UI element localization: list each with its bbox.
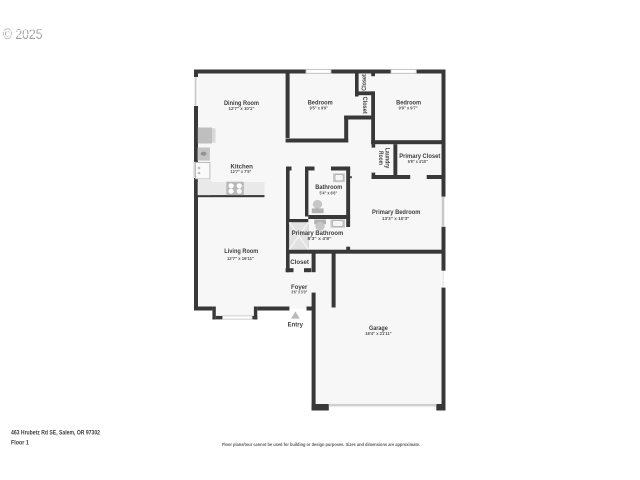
svg-text:Closet: Closet: [361, 97, 368, 115]
svg-text:Bedroom: Bedroom: [396, 99, 421, 106]
svg-text:Primary Bathroom: Primary Bathroom: [292, 230, 344, 237]
svg-text:9'9" x 9'7": 9'9" x 9'7": [399, 106, 418, 112]
svg-text:9'5" x 9'9": 9'5" x 9'9": [310, 106, 328, 112]
svg-text:Primary Bedroom: Primary Bedroom: [372, 209, 420, 216]
svg-text:Living Room: Living Room: [224, 248, 258, 255]
svg-text:12'7" x 10'1": 12'7" x 10'1": [229, 106, 255, 112]
svg-text:Closet: Closet: [290, 259, 309, 266]
svg-text:13'3" x 10'3": 13'3" x 10'3": [382, 216, 410, 222]
svg-text:Primary Closet: Primary Closet: [399, 153, 441, 160]
svg-text:Floor 1: Floor 1: [11, 439, 29, 446]
svg-text:18'4" x 21'11": 18'4" x 21'11": [365, 331, 392, 337]
svg-text:12'7" x 16'11": 12'7" x 16'11": [227, 256, 254, 262]
svg-text:Closet: Closet: [361, 74, 368, 91]
svg-text:Bathroom: Bathroom: [315, 184, 342, 191]
svg-text:Room: Room: [377, 151, 384, 165]
svg-text:5'4" x 6'6": 5'4" x 6'6": [320, 190, 338, 196]
svg-text:6'8" x 4'10": 6'8" x 4'10": [408, 159, 428, 165]
svg-text:3'6" x 5'0": 3'6" x 5'0": [291, 290, 307, 296]
svg-text:463 Hrubetz Rd SE, Salem, OR 9: 463 Hrubetz Rd SE, Salem, OR 97302: [11, 430, 100, 437]
svg-text:Bedroom: Bedroom: [308, 99, 333, 106]
svg-text:Entry: Entry: [288, 322, 304, 329]
svg-text:12'7" x 7'5": 12'7" x 7'5": [230, 169, 251, 175]
svg-text:Floor plans/tour cannot be use: Floor plans/tour cannot be used for buil…: [222, 442, 420, 447]
svg-text:8'3" x 4'8": 8'3" x 4'8": [308, 236, 332, 242]
